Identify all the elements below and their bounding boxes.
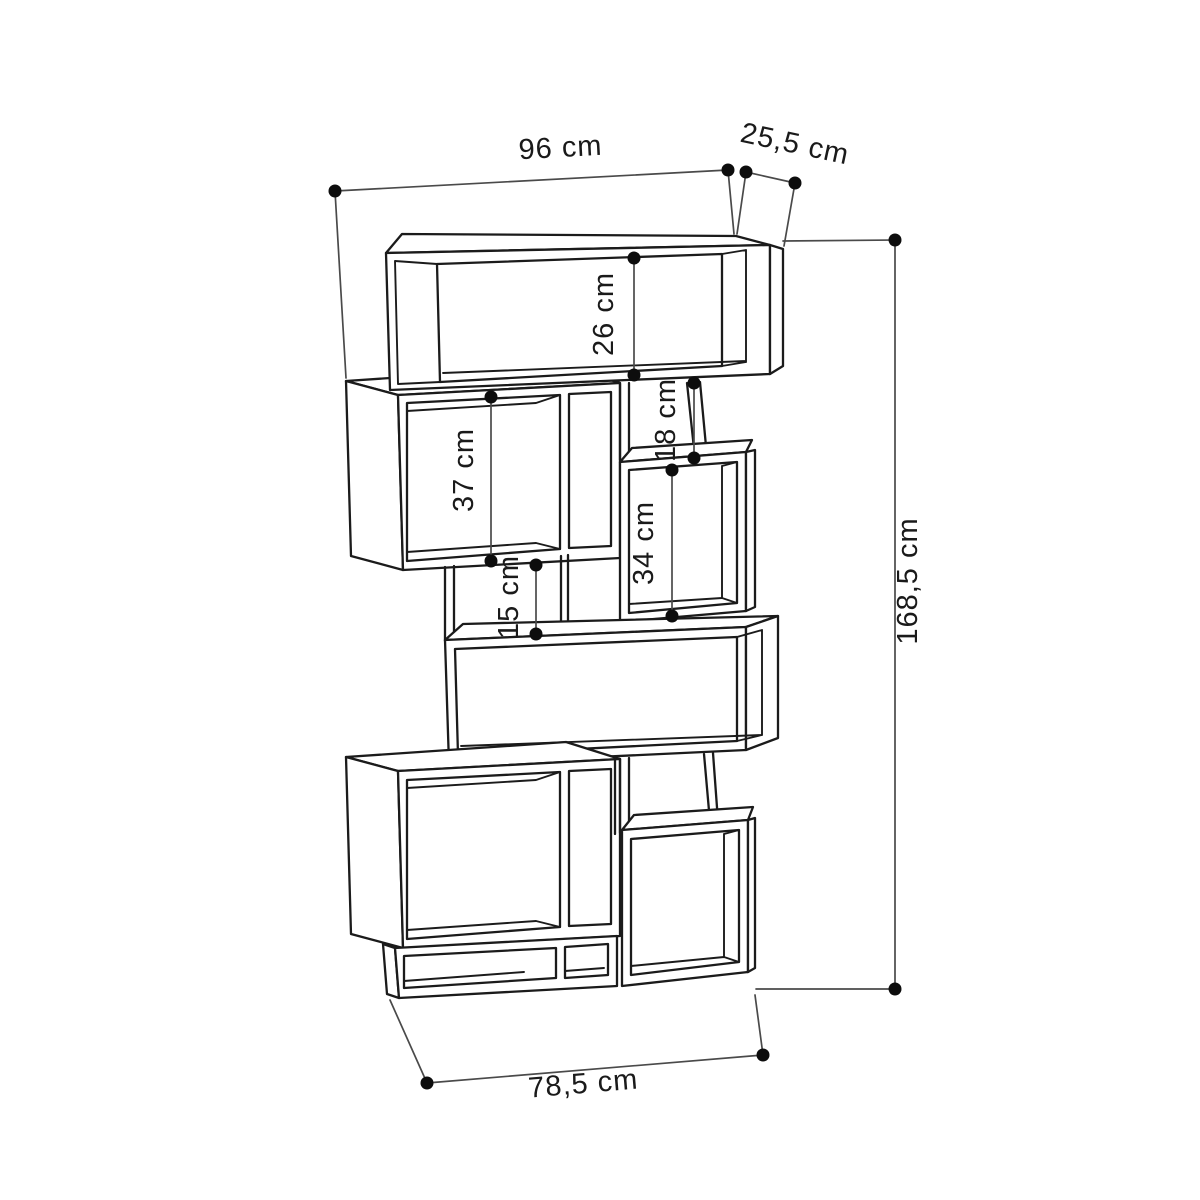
- dim-label-overall-height: 168,5 cm: [892, 517, 924, 644]
- dim-middle-gap: 15 cm: [493, 555, 543, 640]
- lower-left-box: [346, 742, 620, 948]
- dim-label-middle-right-compartment: 34 cm: [628, 501, 660, 585]
- dim-label-depth: 25,5 cm: [738, 117, 852, 171]
- dim-label-top-compartment: 26 cm: [588, 272, 620, 356]
- bottom-right-box: [622, 807, 755, 986]
- upper-left-box: [346, 366, 620, 570]
- dim-label-upper-left-compartment: 37 cm: [448, 428, 480, 512]
- diagram-canvas: 96 cm 25,5 cm 26 cm 18 cm 37: [0, 0, 1200, 1200]
- dim-label-overall-width: 96 cm: [518, 130, 604, 166]
- dim-label-middle-gap: 15 cm: [493, 555, 525, 639]
- dim-base-width: 78,5 cm: [390, 995, 770, 1105]
- top-box: [386, 234, 783, 390]
- dim-depth: 25,5 cm: [737, 117, 852, 246]
- bookcase-outline: [346, 234, 783, 998]
- dim-label-upper-gap: 18 cm: [650, 378, 682, 462]
- bookcase-dimension-diagram: 96 cm 25,5 cm 26 cm 18 cm 37: [0, 0, 1200, 1200]
- dim-label-base-width: 78,5 cm: [527, 1063, 639, 1104]
